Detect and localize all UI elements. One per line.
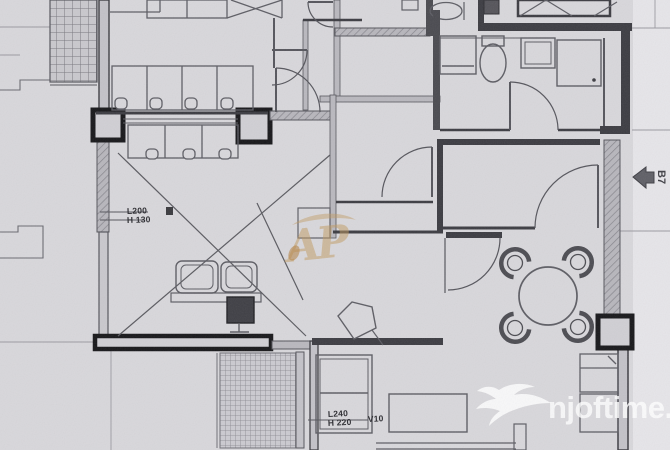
scan-noise [0,0,670,450]
floor-plan-photo: L200 H 130 [0,0,670,450]
floor-plan-svg: L200 H 130 [0,0,670,450]
